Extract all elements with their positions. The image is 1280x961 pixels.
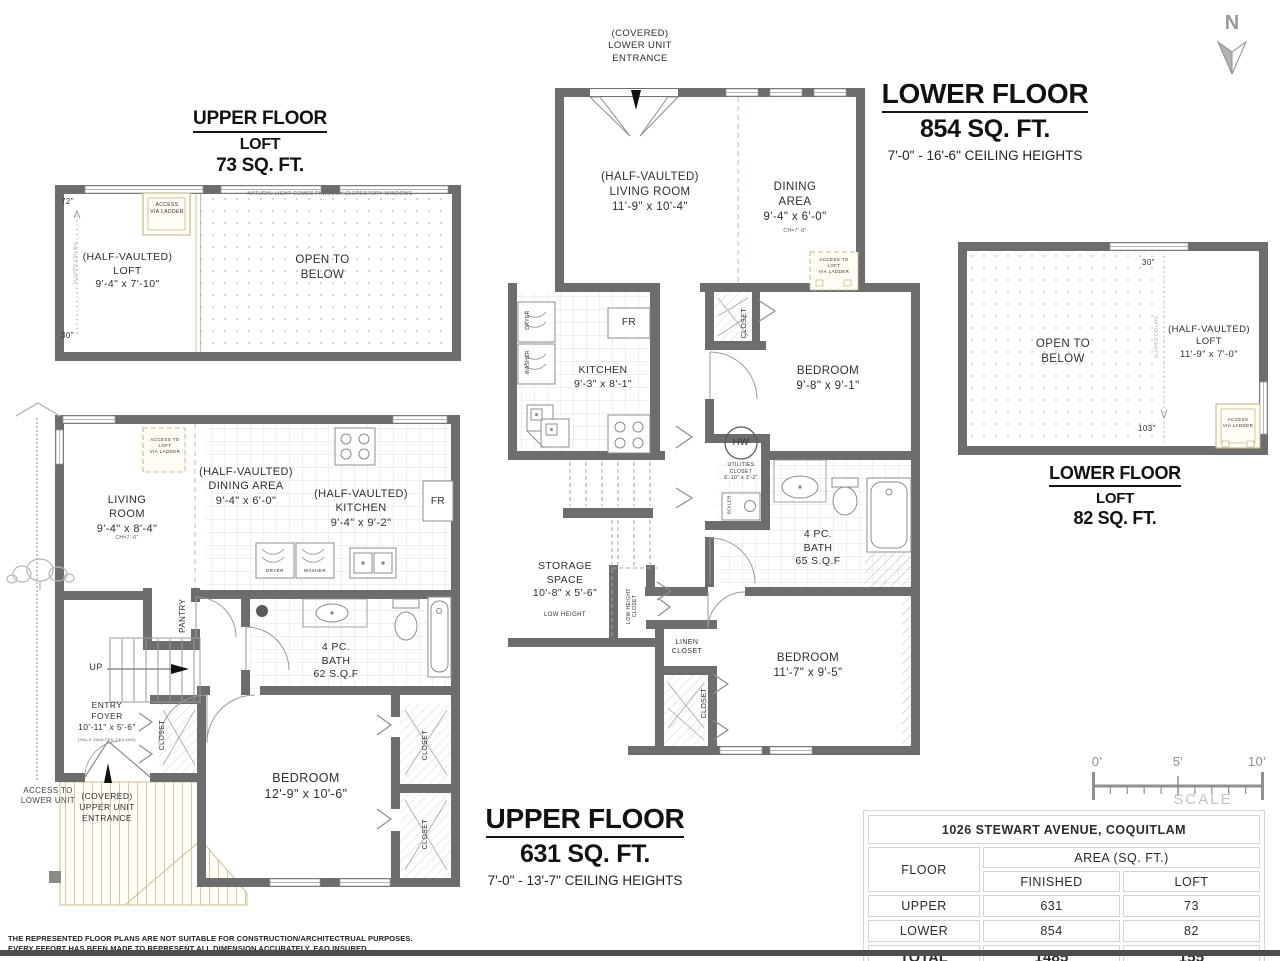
bedroom2-closet-label: CLOSET: [701, 673, 709, 733]
access-ladder-label: ACCESS VIA LADDER: [145, 202, 189, 215]
boiler-label: BOILER: [726, 487, 731, 523]
open-to-below-label: OPEN TO BELOW: [988, 337, 1138, 367]
shrub-icon: [2, 548, 78, 594]
table-row-upper-finished: 631: [983, 895, 1120, 917]
deck-post: [49, 871, 61, 883]
title-upper-loft: UPPER FLOOR LOFT 73 SQ. FT.: [130, 108, 390, 177]
bedroom-label: BEDROOM 12'-9" x 10'-6": [236, 770, 376, 803]
north-arrow-icon: [1210, 34, 1254, 78]
table-row-lower-loft: 82: [1123, 920, 1260, 942]
dim-30: 30": [1142, 258, 1172, 268]
table-row-lower-floor: LOWER: [868, 920, 980, 942]
scale-tick-10: 10': [1242, 754, 1272, 771]
footer-bar: [0, 950, 1280, 956]
clerestory-note: NATURAL LIGHT COMES THROUGH CLERESTORY W…: [205, 191, 455, 198]
floorplan-sheet: N UPPER FLOOR LOFT 73 SQ. FT. LOWER FLOO…: [0, 0, 1280, 961]
access-lower-unit-label: ACCESS TO LOWER UNIT: [0, 786, 96, 807]
dryer-label: DRYER: [525, 300, 531, 340]
scale-tick-5: 5': [1165, 754, 1191, 771]
bedroom2-label: BEDROOM 11'-7" x 9'-5": [748, 651, 868, 681]
dining-ceiling-height: CH=7'-0": [740, 228, 850, 235]
title-lower-loft: LOWER FLOOR LOFT 82 SQ. FT.: [1010, 463, 1220, 529]
open-to-below-label: OPEN TO BELOW: [255, 253, 390, 283]
finished-header: FINISHED: [983, 871, 1120, 892]
area-summary-table: 1026 STEWART AVENUE, COQUITLAM FLOOR ARE…: [863, 810, 1265, 961]
plan-upper-floor-loft: NATURAL LIGHT COMES THROUGH CLERESTORY W…: [55, 185, 461, 361]
foyer-closet-label: CLOSET: [159, 704, 167, 766]
kitchen-label: (HALF-VAULTED) KITCHEN 9'-4" x 9'-2": [306, 487, 416, 530]
table-row-upper-floor: UPPER: [868, 895, 980, 917]
lower-unit-entrance-label: (COVERED) LOWER UNIT ENTRANCE: [570, 28, 710, 65]
scale-label: SCALE: [1143, 790, 1263, 810]
living-room-label: LIVING ROOM 9'-4" x 8'-4": [72, 493, 182, 536]
disclaimer-line1: THE REPRESENTED FLOOR PLANS ARE NOT SUIT…: [8, 934, 488, 944]
north-indicator: N: [1210, 10, 1254, 78]
floor-header: FLOOR: [868, 847, 980, 892]
dining-area-label: DINING AREA 9'-4" x 6'-0": [740, 180, 850, 225]
storage-low-height: LOW HEIGHT: [515, 612, 615, 620]
dining-area-label: (HALF-VAULTED) DINING AREA 9'-4" x 6'-0": [186, 465, 306, 508]
utilities-closet-label: UTILITIES CLOSET 6'-10" x 3'-2": [713, 462, 769, 482]
closet2-label: CLOSET: [422, 804, 430, 864]
plan-upper-floor: ACCESS TO LOFT VIA LADDER LIVING ROOM 9'…: [55, 415, 460, 905]
entry-foyer-sub: (HALF-VAULTED CEILING): [62, 737, 152, 742]
washer-label: WASHER: [292, 568, 338, 574]
entry-foyer-label: ENTRY FOYER 10'-11" x 5'-6": [62, 700, 152, 733]
storage-label: STORAGE SPACE 10'-8" x 5'-6": [515, 560, 615, 601]
dim-72: 72": [61, 197, 87, 207]
linen-closet-label: LINEN CLOSET: [657, 638, 717, 656]
living-ceiling-height: CH=7'-0": [72, 535, 182, 542]
scale-bar: 0' 5' 10' SCALE: [1088, 754, 1268, 810]
pantry-label: PANTRY: [178, 583, 188, 649]
area-header: AREA (SQ. FT.): [983, 847, 1260, 868]
closet1-label: CLOSET: [422, 715, 430, 775]
dim-103: 103": [1138, 424, 1172, 434]
bedroom1-label: BEDROOM 9'-8" x 9'-1": [763, 364, 893, 394]
dim-30: 30": [61, 331, 87, 341]
access-ladder-label: ACCESS VIA LADDER: [1219, 417, 1257, 429]
scale-tick-0: 0': [1084, 754, 1110, 771]
walkway-path: [36, 418, 38, 780]
loft-access-label: ACCESS TO LOFT VIA LADDER: [812, 257, 856, 275]
washer-label: WASHER: [525, 342, 531, 382]
plan-lower-floor: (HALF-VAULTED) LIVING ROOM 11'-9" x 10'-…: [508, 88, 920, 758]
title-upper-floor: UPPER FLOOR 631 SQ. FT. 7'-0" - 13'-7" C…: [450, 803, 720, 888]
entrance-arrow-icon: [631, 90, 641, 110]
entrance-arrow-icon: [104, 763, 112, 783]
loft-access-label: ACCESS TO LOFT VIA LADDER: [147, 437, 183, 455]
bath-label: 4 PC. BATH 65 S.Q.F: [770, 528, 866, 569]
north-label: N: [1210, 10, 1254, 36]
low-height-closet-label: LOW HEIGHT CLOSET: [626, 574, 638, 638]
address: 1026 STEWART AVENUE, COQUITLAM: [868, 815, 1260, 844]
table-row-lower-finished: 854: [983, 920, 1120, 942]
loft-room-label: (HALF-VAULTED) LOFT 11'-9" x 7'-0": [1154, 324, 1264, 361]
kitchen-label: KITCHEN 9'-3" x 8'-1": [553, 364, 653, 391]
table-row-upper-loft: 73: [1123, 895, 1260, 917]
bedroom1-closet-label: CLOSET: [741, 298, 749, 348]
up-label: UP: [83, 662, 109, 674]
walkway-chevron-icon: [14, 400, 62, 418]
living-room-label: (HALF-VAULTED) LIVING ROOM 11'-9" x 10'-…: [580, 170, 720, 215]
fridge-label: FR: [423, 495, 453, 508]
hot-water-label: HW: [723, 437, 759, 449]
plan-lower-floor-loft: 30" SLOPED CEILING (HALF-VAULTED) LOFT 1…: [958, 242, 1268, 455]
loft-header: LOFT: [1123, 871, 1260, 892]
fridge-label: FR: [611, 316, 647, 329]
bath-label: 4 PC. BATH 62 S.Q.F: [286, 641, 386, 682]
loft-room-label: (HALF-VAULTED) LOFT 9'-4" x 7'-10": [70, 251, 185, 292]
